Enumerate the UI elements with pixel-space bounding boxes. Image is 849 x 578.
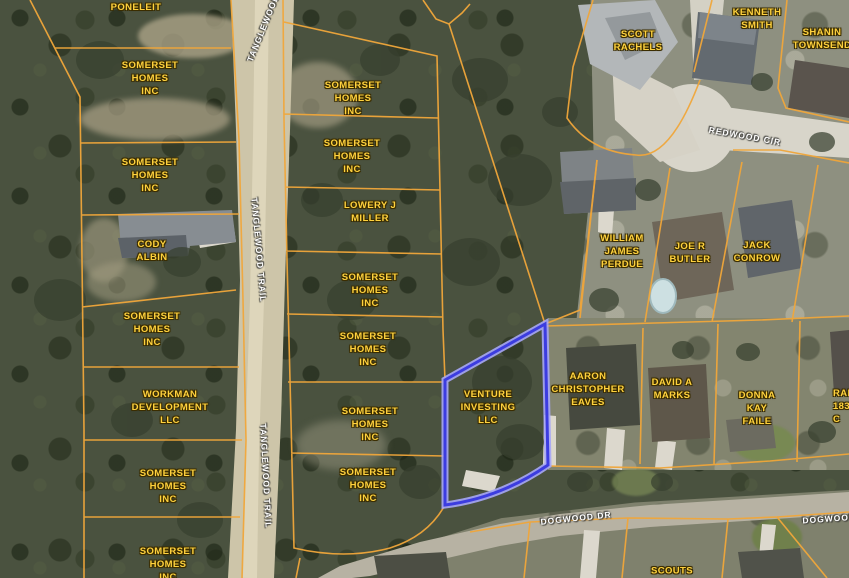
- parcel-label-lowery-miller: LOWERY J MILLER: [344, 200, 396, 226]
- bottom-house: [374, 552, 450, 578]
- parcel-label-somerset-3: SOMERSET HOMES INC: [124, 311, 181, 349]
- parcel-label-kenneth-smith: KENNETH SMITH: [733, 7, 782, 33]
- parcel-label-somerset-6: SOMERSET HOMES INC: [325, 80, 382, 118]
- parcel-label-somerset-9: SOMERSET HOMES INC: [340, 331, 397, 369]
- driveway: [655, 440, 676, 470]
- map-canvas[interactable]: PONELEIT SOMERSET HOMES INC SOMERSET HOM…: [0, 0, 849, 578]
- parcel-label-somerset-11: SOMERSET HOMES INC: [340, 467, 397, 505]
- parcel-label-joe-butler: JOE R BUTLER: [670, 241, 711, 267]
- david-marks-house: [648, 364, 710, 442]
- parcel-label-scott-rachels: SCOTT RACHELS: [614, 29, 663, 55]
- parcel-label-venture-investing: VENTURE INVESTING LLC: [461, 389, 516, 427]
- parcel-label-david-marks: DAVID A MARKS: [652, 377, 693, 403]
- ranch-house: [830, 330, 849, 394]
- parcel-label-william-perdue: WILLIAM JAMES PERDUE: [600, 233, 643, 271]
- driveway: [604, 428, 625, 470]
- parcel-label-workman: WORKMAN DEVELOPMENT LLC: [132, 389, 209, 427]
- parcel-label-cody-albin: CODY ALBIN: [136, 239, 167, 265]
- parcel-label-somerset-4: SOMERSET HOMES INC: [140, 468, 197, 506]
- driveway: [580, 530, 600, 578]
- parcel-label-aaron-eaves: AARON CHRISTOPHER EAVES: [551, 371, 624, 409]
- jack-conrow-house: [738, 200, 802, 278]
- parcel-label-somerset-2: SOMERSET HOMES INC: [122, 157, 179, 195]
- bottom-house: [738, 548, 804, 578]
- parcel-label-poneleit: PONELEIT: [111, 2, 162, 15]
- william-perdue-house-shade: [560, 178, 636, 214]
- parcel-label-donna-faile: DONNA KAY FAILE: [739, 390, 776, 428]
- parcel-label-somerset-7: SOMERSET HOMES INC: [324, 138, 381, 176]
- parcel-label-scouts: SCOUTS: [651, 566, 693, 578]
- parcel-label-ranch-1836: RANC 1836 C: [833, 388, 849, 426]
- parcel-label-somerset-5: SOMERSET HOMES INC: [140, 546, 197, 578]
- parcel-label-somerset-8: SOMERSET HOMES INC: [342, 272, 399, 310]
- driveway: [462, 470, 500, 492]
- parcel-label-somerset-10: SOMERSET HOMES INC: [342, 406, 399, 444]
- shanin-townsend-house: [788, 60, 849, 118]
- parcel-label-shanin-townsend: SHANIN TOWNSEND: [793, 27, 849, 53]
- swimming-pool: [650, 279, 676, 313]
- parcel-label-jack-conrow: JACK CONROW: [734, 240, 781, 266]
- parcel-label-somerset-1: SOMERSET HOMES INC: [122, 60, 179, 98]
